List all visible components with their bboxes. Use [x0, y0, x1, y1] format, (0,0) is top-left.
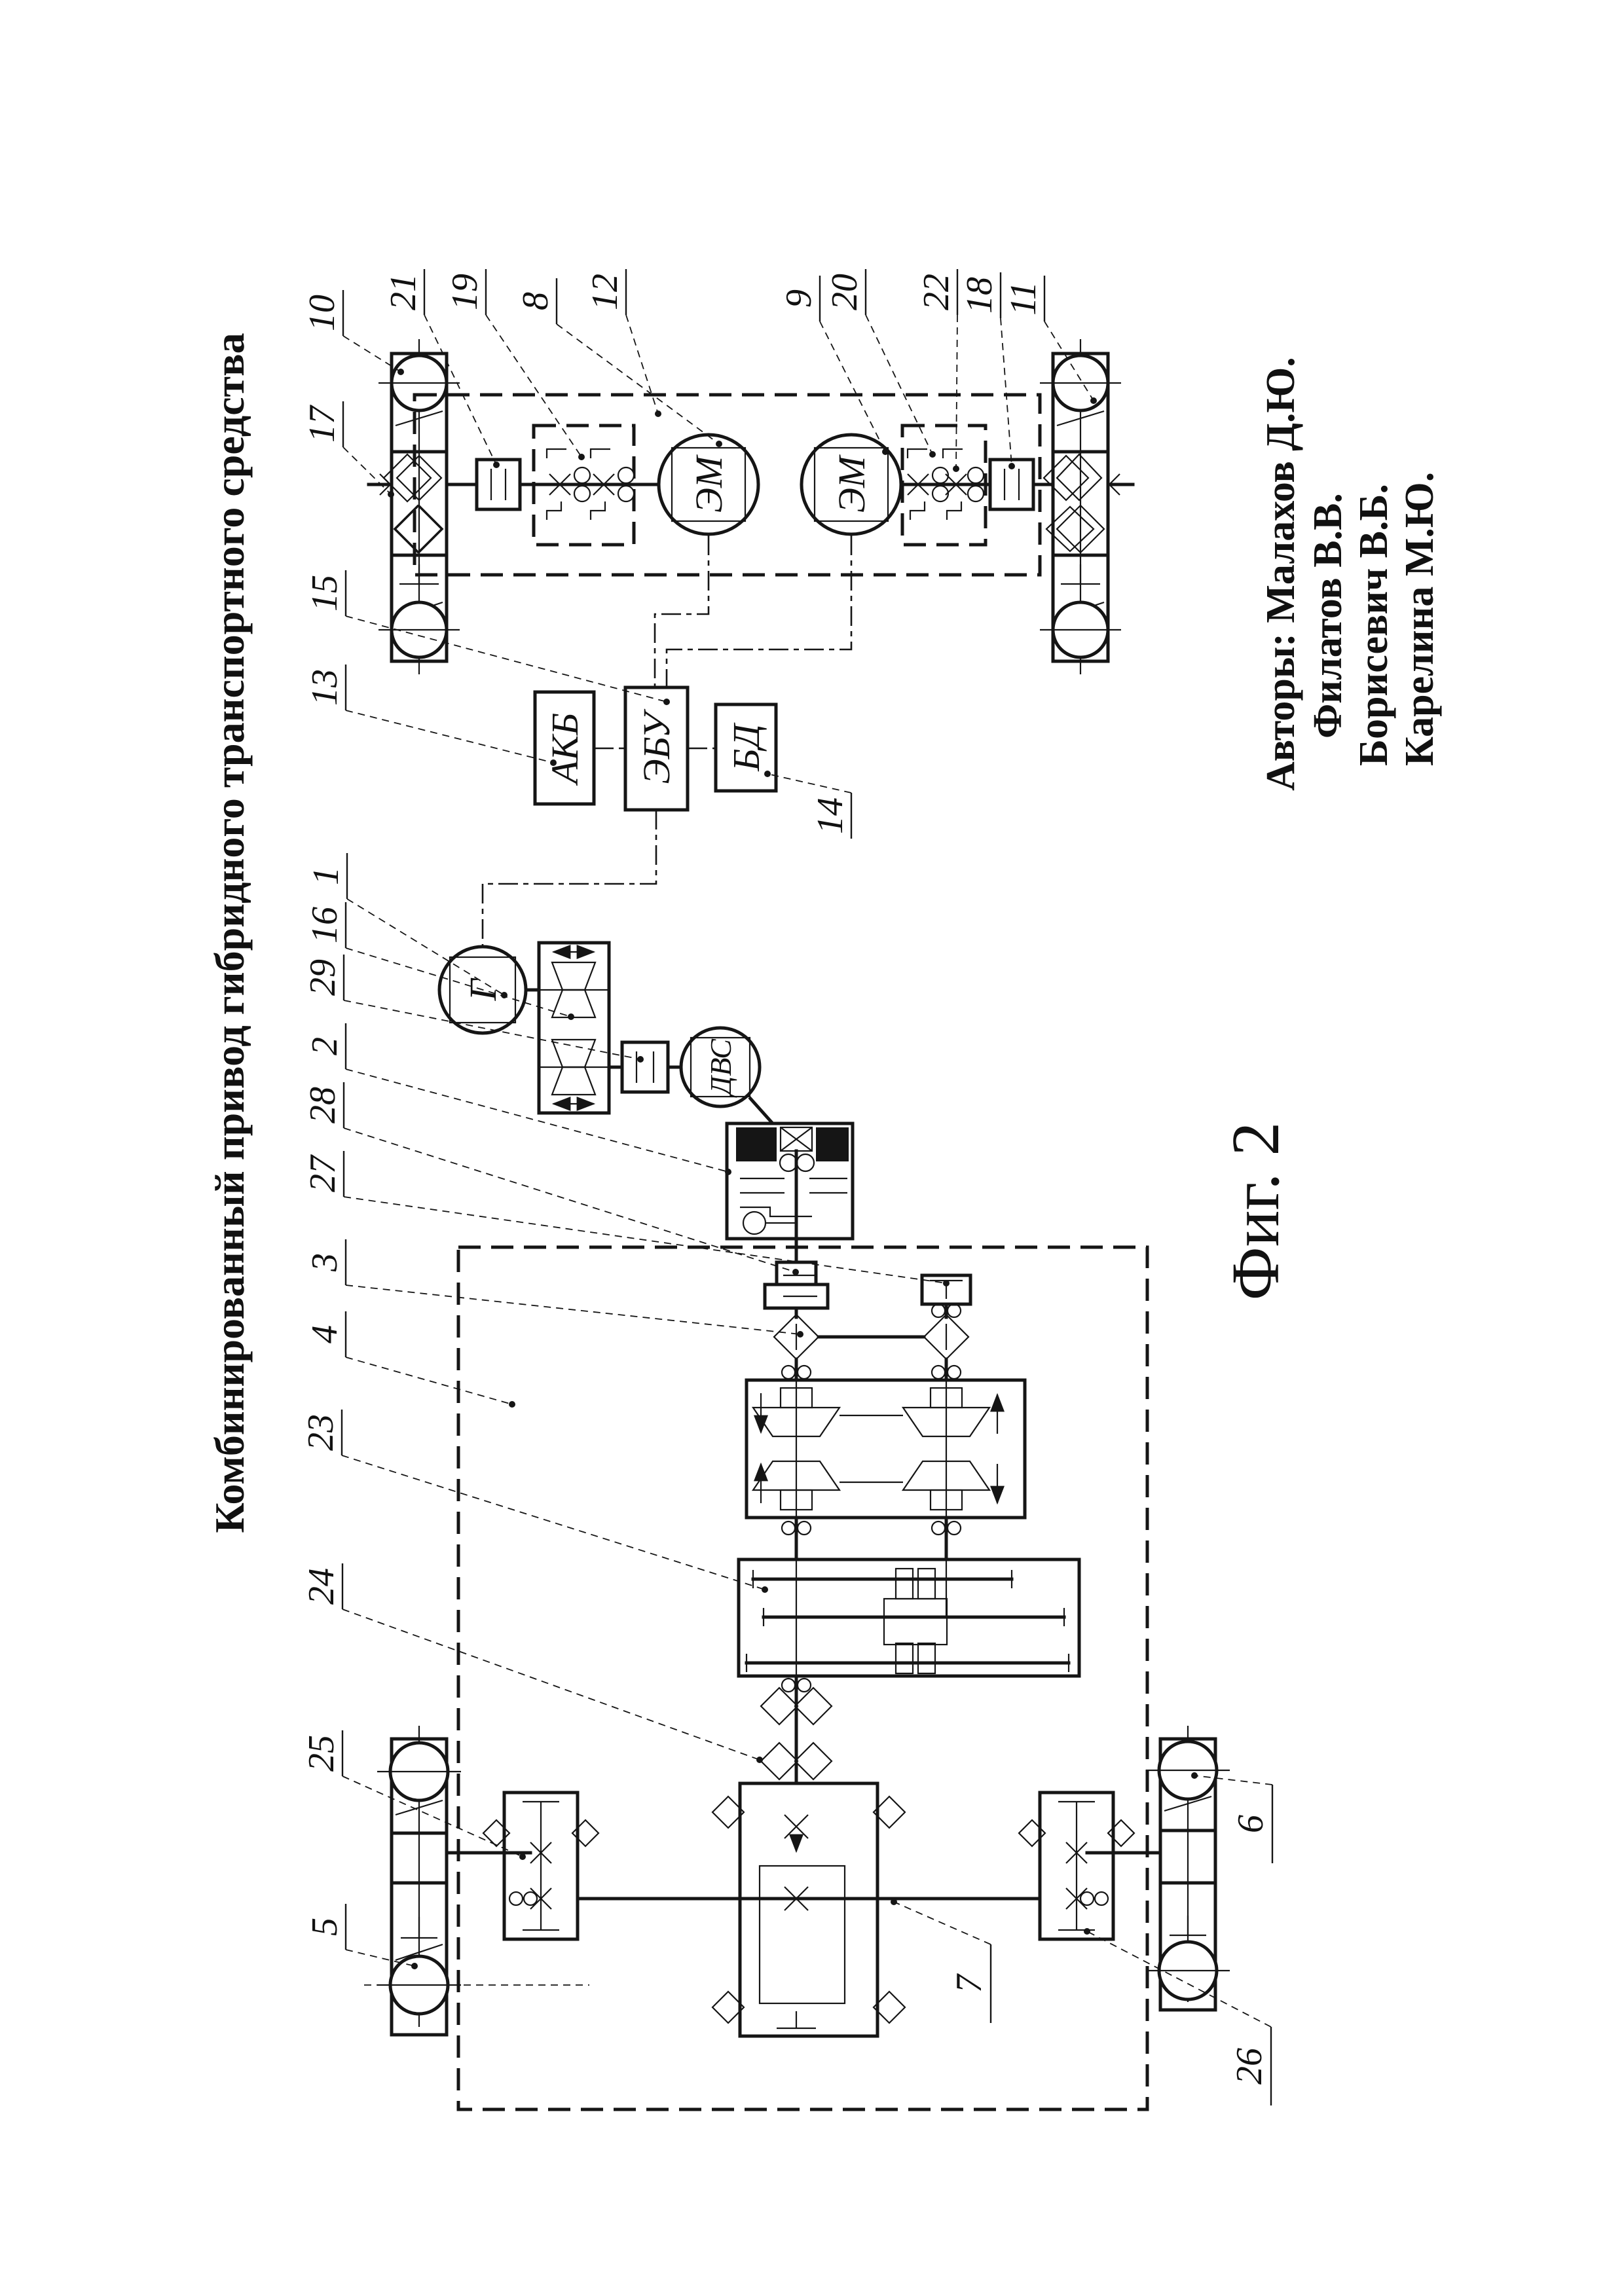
svg-text:9: 9 [779, 289, 819, 308]
motor-right-label: ЭМ [830, 454, 873, 513]
page-title: Комбинированный привод гибридного трансп… [206, 333, 253, 1533]
svg-text:10: 10 [302, 295, 342, 331]
svg-text:2: 2 [304, 1037, 345, 1055]
gearbox [739, 1518, 1079, 1676]
battery-label: АКБ [544, 713, 586, 786]
svg-text:16: 16 [304, 907, 345, 943]
motor-left-label: ЭМ [688, 454, 730, 513]
svg-text:25: 25 [301, 1735, 342, 1772]
callout-19: 19 [445, 269, 585, 460]
database-label: БД [725, 722, 767, 772]
callout-17: 17 [302, 401, 394, 498]
callout-7: 7 [891, 1899, 991, 2023]
svg-text:6: 6 [1230, 1815, 1271, 1833]
engine-label: ДВС [704, 1038, 737, 1098]
svg-text:18: 18 [959, 277, 1000, 314]
engine-coupling [609, 1042, 681, 1092]
figure-drawing: Комбинированный привод гибридного трансп… [0, 0, 1624, 2296]
engine-assembly-block [727, 1099, 853, 1239]
svg-text:5: 5 [304, 1918, 345, 1936]
callout-23: 23 [301, 1410, 768, 1593]
svg-text:8: 8 [515, 292, 556, 310]
svg-text:14: 14 [810, 797, 851, 834]
svg-text:15: 15 [304, 575, 345, 611]
author-line-1: Авторы: Малахов Д.Ю. [1259, 357, 1303, 791]
callout-4: 4 [304, 1311, 515, 1408]
central-transfer-unit [712, 1783, 905, 2036]
callout-16: 16 [304, 902, 574, 1020]
generator-cvt-unit [539, 943, 609, 1113]
callout-24: 24 [301, 1563, 763, 1763]
svg-text:3: 3 [304, 1253, 345, 1272]
callout-13: 13 [304, 665, 557, 766]
author-line-4: Карелина М.Ю. [1397, 472, 1442, 766]
front-right-track-unit [1040, 339, 1121, 674]
svg-text:17: 17 [302, 405, 342, 443]
author-line-2: Филатов В.В. [1306, 493, 1350, 738]
svg-text:22: 22 [916, 274, 957, 310]
svg-text:28: 28 [303, 1087, 343, 1123]
svg-text:4: 4 [304, 1325, 345, 1343]
front-left-track-unit [378, 339, 460, 674]
onboard-gearbox-left [483, 1793, 599, 1939]
control-unit-block: ЭБУ [625, 687, 688, 810]
svg-text:13: 13 [304, 669, 345, 706]
svg-text:11: 11 [1003, 282, 1044, 316]
rear-cvt-variator [747, 1380, 1025, 1518]
svg-text:26: 26 [1229, 2048, 1270, 2085]
svg-text:29: 29 [303, 959, 343, 996]
rear-input-clutch [765, 1239, 828, 1317]
svg-text:24: 24 [301, 1568, 342, 1605]
electric-motor-left: ЭМ [659, 435, 758, 534]
svg-text:27: 27 [303, 1154, 343, 1192]
authors-block: Авторы: Малахов Д.Ю. Филатов В.В. Борисе… [1259, 357, 1442, 791]
svg-text:21: 21 [383, 274, 424, 310]
onboard-gearbox-right [1019, 1793, 1134, 1939]
battery-block: АКБ [535, 692, 594, 804]
svg-text:12: 12 [585, 274, 625, 310]
svg-text:7: 7 [949, 1973, 989, 1993]
author-line-3: Борисевич В.Б. [1352, 484, 1396, 766]
double-cardan-joint [761, 1676, 832, 1783]
database-block: БД [716, 704, 776, 791]
svg-text:1: 1 [306, 867, 346, 885]
svg-text:23: 23 [301, 1414, 341, 1451]
universal-joints [774, 1315, 969, 1380]
rear-right-track-unit [1146, 1726, 1230, 2010]
control-unit-label: ЭБУ [635, 708, 678, 784]
callout-22: 22 [916, 269, 959, 472]
figure-label: Фиг. 2 [1218, 1122, 1293, 1301]
engine-unit: ДВС [681, 1028, 760, 1106]
svg-text:19: 19 [445, 274, 485, 310]
svg-text:20: 20 [824, 274, 865, 310]
callout-15: 15 [304, 570, 670, 705]
patent-page: Комбинированный привод гибридного трансп… [0, 0, 1624, 2296]
callout-3: 3 [304, 1239, 803, 1338]
